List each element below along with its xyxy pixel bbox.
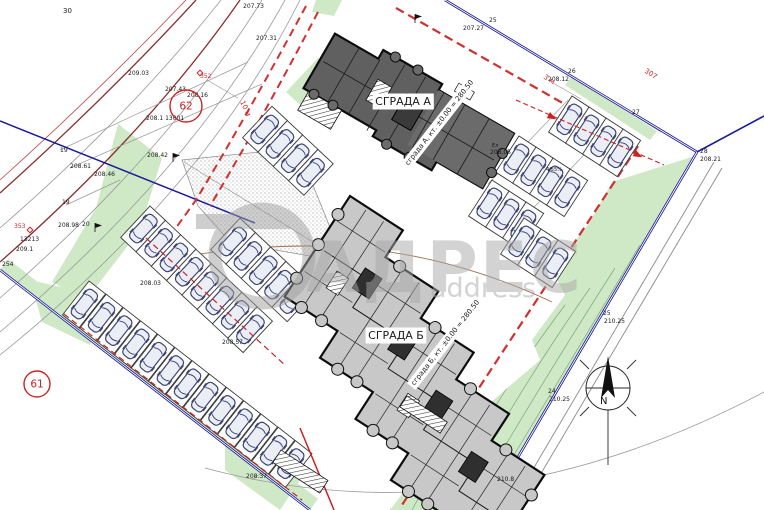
map-label: 254 bbox=[2, 261, 14, 268]
svg-text:25: 25 bbox=[603, 310, 611, 317]
svg-text:25: 25 bbox=[489, 17, 497, 24]
watermark-sub: address bbox=[430, 273, 536, 304]
map-label: 353 bbox=[14, 223, 26, 230]
svg-text:208.21: 208.21 bbox=[700, 156, 721, 163]
svg-text:210.8: 210.8 bbox=[497, 476, 514, 483]
map-label: 4.55% bbox=[546, 167, 562, 173]
svg-text:254: 254 bbox=[2, 261, 14, 268]
svg-text:19: 19 bbox=[60, 147, 68, 154]
svg-text:30: 30 bbox=[63, 7, 72, 15]
svg-text:353: 353 bbox=[14, 223, 26, 230]
map-label: 209.03 bbox=[128, 70, 149, 77]
watermark-logo-bar bbox=[196, 214, 296, 229]
map-label: 352 bbox=[200, 73, 212, 80]
map-label: 25 bbox=[603, 310, 611, 317]
svg-text:207.31: 207.31 bbox=[256, 35, 277, 42]
map-label: 26 bbox=[568, 68, 576, 75]
svg-text:20: 20 bbox=[82, 221, 90, 228]
map-label: СГРАДА Б bbox=[366, 328, 427, 344]
svg-text:208.61: 208.61 bbox=[70, 163, 91, 170]
svg-text:СГРАДА А: СГРАДА А bbox=[375, 95, 431, 108]
svg-text:352: 352 bbox=[200, 73, 212, 80]
svg-text:208.57: 208.57 bbox=[222, 339, 243, 346]
map-label: 208.03 bbox=[140, 280, 161, 287]
map-label: 207.43 bbox=[165, 86, 186, 93]
map-label: 207.31 bbox=[256, 35, 277, 42]
svg-text:210.25: 210.25 bbox=[604, 318, 625, 325]
map-label: 19 bbox=[62, 199, 70, 206]
svg-text:208.03: 208.03 bbox=[140, 280, 161, 287]
map-label: 28 bbox=[700, 148, 708, 155]
svg-text:26: 26 bbox=[568, 68, 576, 75]
svg-text:13213: 13213 bbox=[20, 236, 39, 243]
map-label: 20 bbox=[82, 221, 90, 228]
map-label: 208.46 bbox=[94, 171, 115, 178]
map-label: 24 bbox=[548, 388, 556, 395]
svg-text:210.25: 210.25 bbox=[549, 396, 570, 403]
map-label: 208.98 bbox=[58, 222, 79, 229]
svg-text:207.43: 207.43 bbox=[165, 86, 186, 93]
map-label: 25 bbox=[489, 17, 497, 24]
svg-text:19: 19 bbox=[62, 199, 70, 206]
svg-text:СГРАДА Б: СГРАДА Б bbox=[368, 329, 424, 342]
svg-text:207.27: 207.27 bbox=[463, 25, 484, 32]
map-label: 210.25 bbox=[604, 318, 625, 325]
map-label: 208.61 bbox=[70, 163, 91, 170]
map-label: 30 bbox=[63, 7, 72, 15]
map-label: 19 bbox=[60, 147, 68, 154]
svg-text:208.46: 208.46 bbox=[94, 171, 115, 178]
compass-north-label: N bbox=[600, 396, 607, 407]
svg-text:208.42: 208.42 bbox=[147, 152, 168, 159]
map-label: 13213 bbox=[20, 236, 39, 243]
map-label: 208.21 bbox=[700, 156, 721, 163]
svg-text:61: 61 bbox=[30, 379, 43, 391]
svg-text:62: 62 bbox=[179, 101, 192, 113]
map-label: 208.05 bbox=[490, 149, 511, 156]
map-label: 210.8 bbox=[497, 476, 514, 483]
svg-text:209.1: 209.1 bbox=[16, 246, 33, 253]
map-label: 207.73 bbox=[243, 3, 264, 10]
map-label: 208.57 bbox=[222, 339, 243, 346]
svg-text:208.05: 208.05 bbox=[490, 149, 511, 156]
map-label: 208.37 bbox=[246, 473, 267, 480]
svg-text:209.03: 209.03 bbox=[128, 70, 149, 77]
map-label: 209.1 bbox=[16, 246, 33, 253]
map-label: 208.42 bbox=[147, 152, 168, 159]
svg-text:207.73: 207.73 bbox=[243, 3, 264, 10]
map-label: 210.25 bbox=[549, 396, 570, 403]
map-label: 207.27 bbox=[463, 25, 484, 32]
svg-text:208.98: 208.98 bbox=[58, 222, 79, 229]
svg-text:4.55%: 4.55% bbox=[546, 167, 562, 173]
svg-text:27: 27 bbox=[632, 109, 640, 116]
svg-text:24: 24 bbox=[548, 388, 556, 395]
svg-text:28: 28 bbox=[700, 148, 708, 155]
svg-text:208.37: 208.37 bbox=[246, 473, 267, 480]
map-label: 27 bbox=[632, 109, 640, 116]
map-label: СГРАДА А bbox=[373, 94, 434, 110]
site-plan-canvas: АДРЕС address 30207.73207.31352209.03207… bbox=[0, 0, 764, 510]
